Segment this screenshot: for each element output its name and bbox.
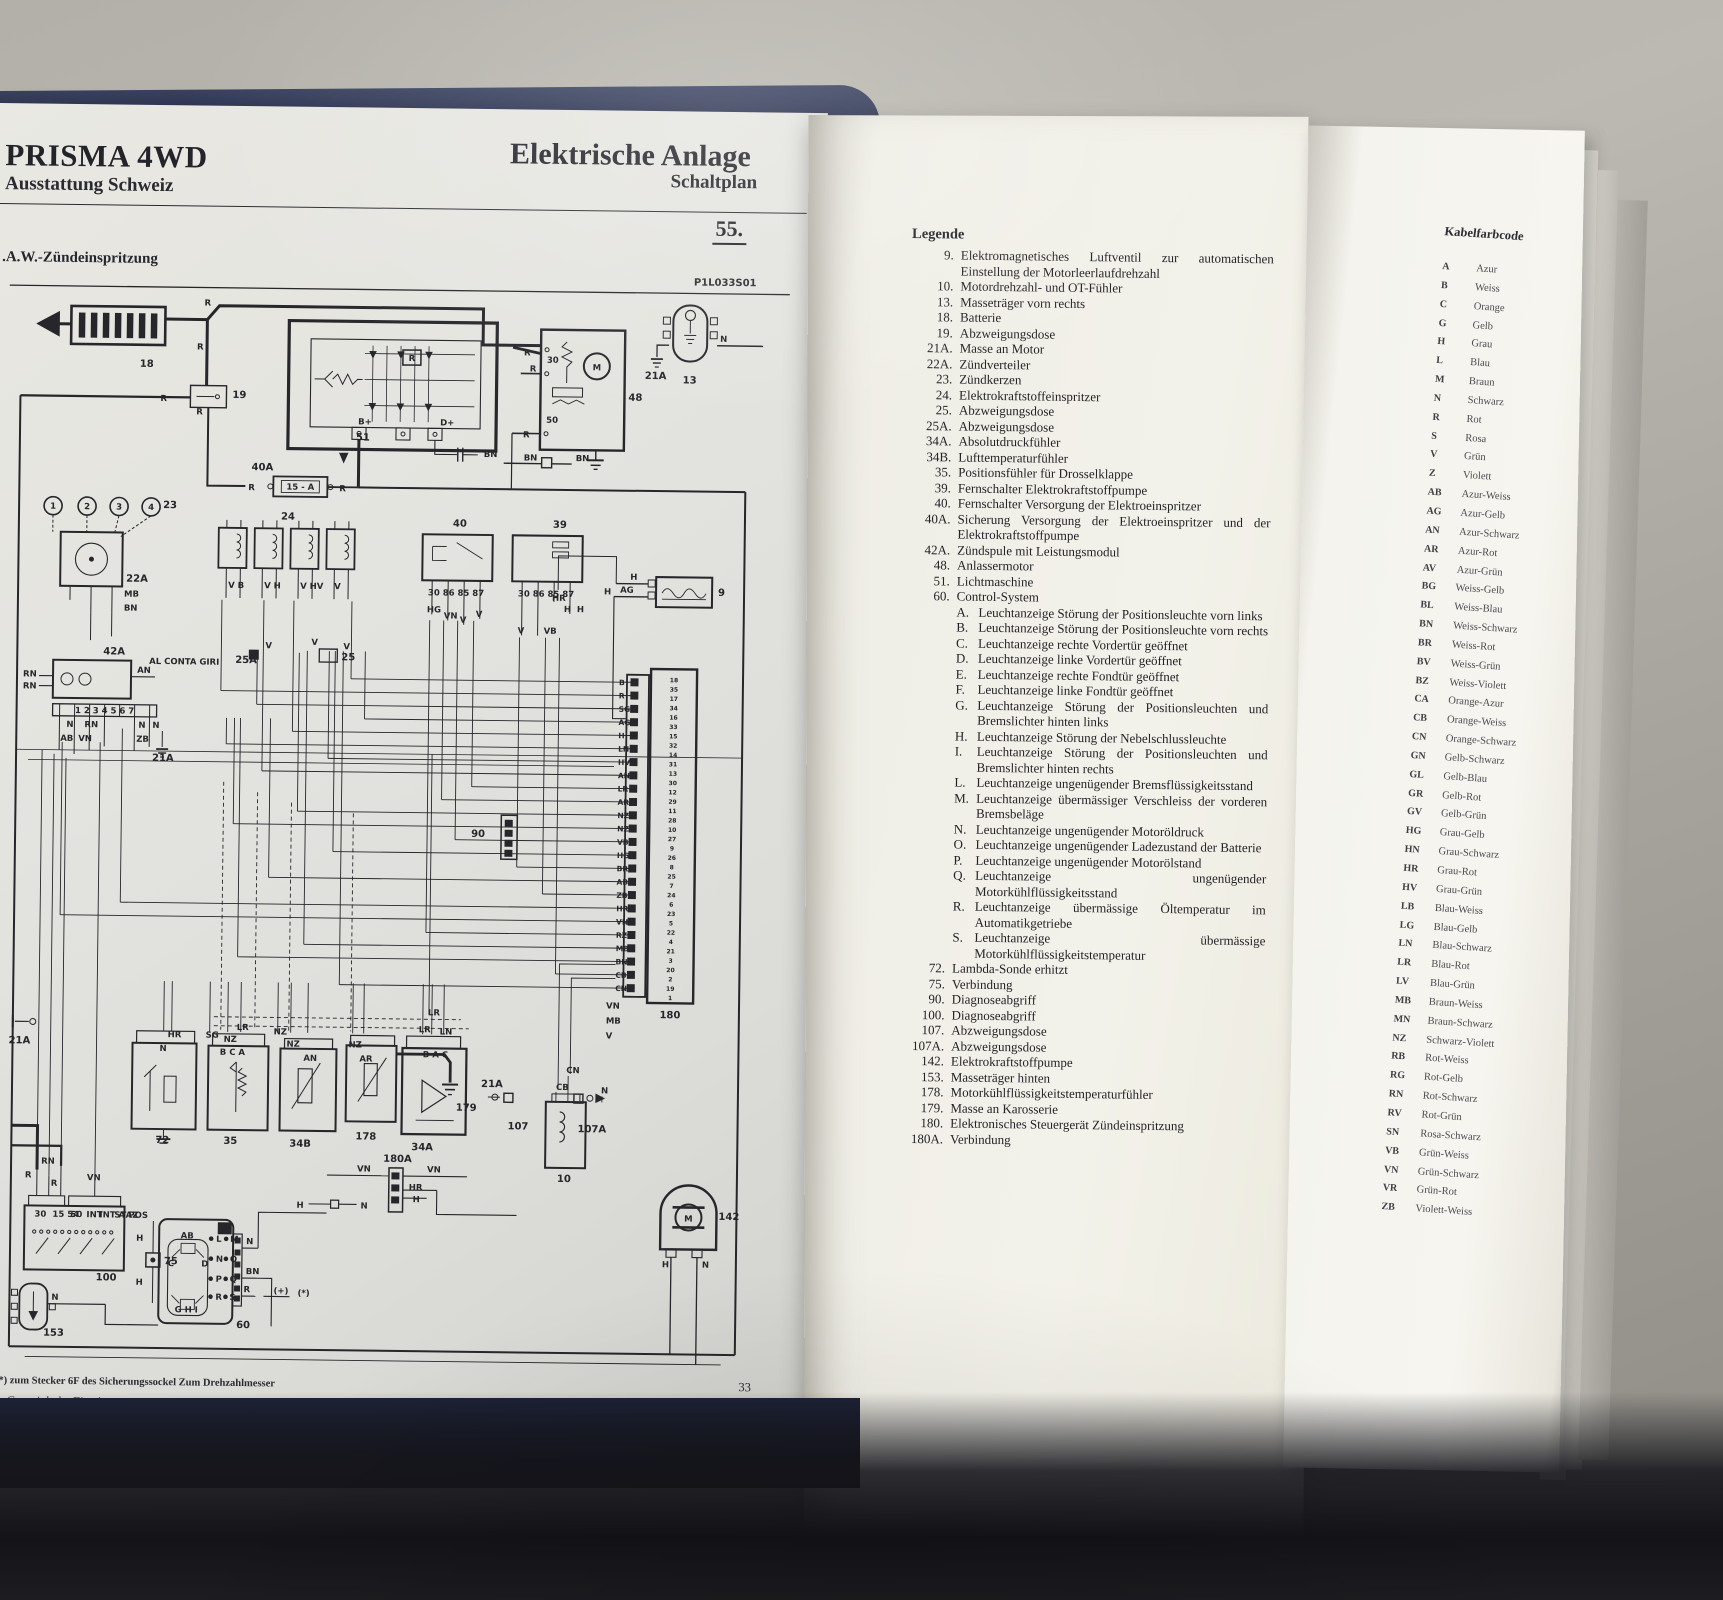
diagram-label: NZ [274, 1027, 287, 1037]
diagram-label: AN [618, 771, 630, 780]
diagram-label: 29 [668, 799, 676, 806]
diagram-label: H [577, 605, 584, 615]
kabelfarbcode-heading: Kabelfarbcode [1444, 224, 1596, 249]
diagram-label: NZ [286, 1040, 299, 1050]
diagram-label: VN [78, 734, 92, 744]
diagram-label: 10 [557, 1174, 571, 1185]
diagram-label: 35 [670, 687, 678, 694]
diagram-label: BN [576, 454, 590, 464]
diagram-label: V [265, 641, 272, 651]
section-title: Elektrische Anlage [475, 137, 785, 175]
diagram-label: 34B [289, 1139, 311, 1150]
diagram-label: R [25, 1170, 32, 1180]
diagram-label: 18 [670, 677, 678, 684]
diagram-label: 48 [628, 393, 642, 404]
diagram-label: 40A [252, 462, 274, 473]
diagram-label: 7 [669, 883, 673, 890]
left-page-schaltplan: PRISMA 4WD Ausstattung Schweiz Elektrisc… [0, 103, 828, 1421]
diagram-label: HG [617, 851, 630, 860]
legend-subitem: M.Leuchtanzeige übermässiger Verschleiss… [901, 789, 1267, 824]
diagram-label: POS [128, 1211, 148, 1221]
diagram-label: 3 [668, 958, 672, 965]
legend-item: 180A.Verbindung [897, 1130, 1263, 1150]
diagram-label: P [216, 1275, 222, 1285]
diagram-label: 17 [670, 696, 678, 703]
diagram-label: 2 [84, 502, 90, 512]
diagram-label: 24 [281, 511, 295, 522]
diagram-label: VN [427, 1165, 441, 1175]
diagram-label: 23 [667, 911, 675, 918]
diagram-label: BN [246, 1267, 260, 1277]
diagram-label: R [160, 394, 167, 404]
diagram-label: S [229, 1293, 235, 1303]
diagram-label: 9 [670, 846, 674, 853]
diagram-label: AL CONTA GIRI [149, 657, 219, 668]
diagram-label: 32 [669, 743, 677, 750]
diagram-label: 21A [8, 1035, 30, 1046]
diagram-label: R [619, 691, 625, 700]
diagram-label: HR [409, 1183, 423, 1193]
diagram-label: CB [556, 1083, 569, 1093]
diagram-label: RN [41, 1157, 55, 1167]
legend-subitem: G.Leuchtanzeige Störung der Positionsleu… [902, 696, 1268, 731]
diagram-label: RN [23, 669, 37, 679]
diagram-label: 23 [163, 500, 177, 511]
diagram-label: MB [606, 1016, 621, 1026]
diagram-label: NZ [617, 824, 629, 833]
diagram-label: B [619, 678, 625, 687]
diagram-label: 142 [718, 1212, 739, 1223]
diagram-label: V [334, 582, 341, 592]
diagram-label: O [230, 1255, 237, 1265]
diagram-label: R [530, 365, 537, 375]
diagram-label: 39 [553, 520, 567, 531]
diagram-label: 178 [355, 1131, 376, 1142]
diagram-label: H [413, 1195, 420, 1205]
diagram-label: HV [618, 758, 630, 767]
diagram-label: 2 [668, 976, 672, 983]
diagram-label: BN [484, 450, 498, 460]
diagram-label: B+ [358, 417, 372, 427]
diagram-label: LR [618, 785, 629, 794]
diagram-label: 8 [670, 864, 674, 871]
diagram-label: RZ [616, 931, 628, 940]
diagram-label: R [205, 299, 212, 309]
diagram-label: V [311, 638, 318, 648]
legend-subitem: I.Leuchtanzeige Störung der Positionsleu… [901, 743, 1267, 778]
diagram-label: 3 [116, 502, 122, 512]
diagram-label: BN [524, 453, 538, 463]
diagram-label: N [601, 1086, 608, 1096]
foldout-page-kabelfarbcode: Kabelfarbcode AAzurBWeissCOrangeGGelbHGr… [1283, 125, 1585, 1472]
diagram-label: 179 [456, 1103, 477, 1114]
diagram-label: VB [544, 627, 557, 637]
diagram-label: 1 [668, 995, 672, 1002]
diagram-label: CN [566, 1066, 579, 1076]
diagram-label: 30 86 85 87 [428, 588, 484, 599]
diagram-label: BR [617, 864, 629, 873]
legend-subitem: Q.Leuchtanzeige ungenügender Motorkühlfl… [900, 867, 1266, 902]
diagram-label: AN [303, 1054, 317, 1064]
diagram-label: N [246, 1237, 253, 1247]
diagram-label: 4 [148, 503, 154, 513]
diagram-label: MB [124, 590, 139, 600]
diagram-label: AR [617, 798, 629, 807]
diagram-label: V H [264, 581, 281, 591]
diagram-label: 13 [669, 771, 677, 778]
diagram-label: H [630, 573, 637, 583]
diagram-label: 60 [236, 1320, 250, 1331]
legend-block: Legende 9.Elektromagnetisches Luftventil… [897, 226, 1274, 1150]
diagram-label: 180A [383, 1154, 412, 1165]
diagram-label: 30 [547, 356, 559, 366]
diagram-subtitle: .A.W.-Zündeinspritzung [2, 249, 158, 268]
diagram-label: 15 [669, 733, 677, 740]
plan-number: 55. [712, 216, 746, 245]
diagram-label: 35 [223, 1136, 237, 1147]
diagram-label: 100 [96, 1272, 117, 1283]
diagram-label: 180 [659, 1010, 680, 1021]
diagram-label: MB [616, 944, 630, 953]
diagram-label: 50 [70, 1210, 82, 1220]
kabelfarbcode-block: Kabelfarbcode AAzurBWeissCOrangeGGelbHGr… [1381, 224, 1595, 1230]
diagram-label: NZ [617, 811, 629, 820]
right-page-legend: Legende 9.Elektromagnetisches Luftventil… [803, 115, 1308, 1565]
diagram-label: H [618, 731, 624, 740]
diagram-label: H [604, 587, 611, 597]
diagram-label: BN [616, 957, 628, 966]
diagram-label: C [168, 1259, 174, 1269]
diagram-label: LR [237, 1023, 250, 1033]
diagram-label: V [460, 616, 467, 626]
diagram-label: V [518, 626, 525, 636]
diagram-label: 24 [667, 892, 675, 899]
diagram-label: AG [620, 586, 634, 596]
diagram-label: B A C [423, 1050, 448, 1060]
diagram-label: R [197, 342, 204, 352]
diagram-label: 15 - A [286, 483, 314, 493]
legend-subitem: R.Leuchtanzeige übermässige Öltemperatur… [900, 898, 1266, 933]
diagram-label: 33 [669, 724, 677, 731]
section-header: Elektrische Anlage Schaltplan [475, 137, 786, 195]
diagram-label: AR [359, 1054, 373, 1064]
diagram-label: AB [181, 1231, 194, 1241]
diagram-label: N [216, 1255, 223, 1265]
legend-subitem: S.Leuchtanzeige übermässige Motorkühlflü… [899, 929, 1265, 964]
diagram-label: 1 2 3 4 5 6 7 [75, 706, 134, 717]
diagram-label: M [230, 1235, 239, 1245]
kabelfarbcode-rows: AAzurBWeissCOrangeGGelbHGrauLBlauMBraunN… [1381, 261, 1593, 1230]
diagram-label: 10 [668, 827, 676, 834]
diagram-label: N [152, 721, 159, 731]
diagram-label: 21A [481, 1079, 503, 1090]
legend-item: 9.Elektromagnetisches Luftventil zur aut… [908, 247, 1274, 282]
diagram-label: N [702, 1261, 709, 1271]
diagram-label: 4 [669, 939, 673, 946]
diagram-label: R [524, 348, 531, 358]
diagram-label: N [138, 721, 145, 731]
model-subtitle: Ausstattung Schweiz [5, 173, 174, 197]
diagram-label: L [216, 1235, 222, 1245]
diagram-label: H [136, 1278, 143, 1288]
diagram-label: 19 [232, 390, 246, 401]
diagram-label: HR [168, 1030, 182, 1040]
diagram-label: R [51, 1179, 58, 1189]
diagram-label: LR [428, 1008, 441, 1018]
diagram-label: V HV [300, 582, 324, 592]
diagram-label: AN [137, 666, 151, 676]
diagram-label: VN [444, 611, 458, 621]
diagram-label: 34A [411, 1142, 433, 1153]
diagram-label: 25A [235, 655, 257, 666]
diagram-label: R [523, 430, 530, 440]
diagram-label: H [564, 605, 571, 615]
diagram-label: (+) [273, 1286, 288, 1296]
photographed-manual-spread: PRISMA 4WD Ausstattung Schweiz Elektrisc… [0, 0, 1723, 1600]
diagram-label: 5 [669, 920, 673, 927]
diagram-label: R [409, 354, 416, 364]
diagram-label: SG [619, 705, 631, 714]
diagram-label: 14 [669, 752, 677, 759]
diagram-label: 16 [669, 715, 677, 722]
diagram-label: 42A [103, 646, 125, 657]
diagram-label: AG [618, 718, 630, 727]
diagram-label: N [720, 335, 727, 345]
diagram-label: 27 [668, 836, 676, 843]
diagram-label: N [66, 720, 73, 730]
diagram-label: AB [60, 734, 73, 744]
diagram-label: 31 [669, 761, 677, 768]
diagram-label: CN [615, 984, 627, 993]
diagram-label: M [593, 363, 602, 373]
diagram-label: 28 [668, 817, 676, 824]
diagram-label: ZB [136, 735, 149, 745]
diagram-label: 30 [34, 1210, 46, 1220]
diagram-label: 13 [683, 375, 697, 386]
diagram-label: LN [440, 1027, 453, 1037]
diagram-label: 30 86 85 87 [518, 589, 574, 600]
diagram-label: D [221, 1225, 228, 1235]
diagram-label: SG [206, 1031, 219, 1041]
diagram-label: 90 [471, 829, 485, 840]
diagram-label: M [684, 1214, 693, 1224]
diagram-label: RN [23, 681, 37, 691]
diagram-label: 1 [50, 502, 56, 512]
diagram-label: BN [124, 604, 138, 614]
wiring-diagram: 181951481321A40A2322A2425A25403942A21A99… [0, 279, 796, 1379]
diagram-label: 26 [668, 855, 676, 862]
diagram-label: (*) [297, 1289, 309, 1299]
diagram-label: NZ [348, 1040, 361, 1050]
diagram-label: 22 [667, 930, 675, 937]
diagram-label: NZ [224, 1035, 237, 1045]
diagram-label: LN [618, 745, 629, 754]
diagram-label: R [339, 484, 346, 494]
diagram-label: 72 [155, 1135, 169, 1146]
diagram-label: G H I [175, 1305, 198, 1315]
legend-items: 9.Elektromagnetisches Luftventil zur aut… [897, 247, 1274, 1150]
diagram-label: Q [230, 1275, 237, 1285]
diagram-label: D [201, 1260, 208, 1270]
diagram-label: 25 [341, 652, 355, 663]
legend-item: 40A.Sicherung Versorgung der Elektroeins… [904, 510, 1270, 545]
diagram-label: AB [616, 878, 628, 887]
diagram-label: 11 [668, 808, 676, 815]
diagram-label: VN [606, 1001, 620, 1011]
diagram-label: HG [427, 605, 441, 615]
diagram-label: 25 [667, 874, 675, 881]
diagram-label: 51 [356, 432, 370, 443]
diagram-label: 22A [126, 574, 148, 585]
wiring-diagram-svg: 181951481321A40A2322A2425A25403942A21A99… [0, 279, 796, 1379]
diagram-label: 107 [507, 1121, 528, 1132]
diagram-label: 21A [152, 753, 174, 764]
diagram-label: 30 [669, 780, 677, 787]
diagram-label: V [606, 1031, 613, 1041]
diagram-label: V [343, 642, 350, 652]
diagram-footnote: *) zum Stecker 6F des Sicherungssockel Z… [0, 1375, 275, 1389]
diagram-label: R [215, 1293, 222, 1303]
diagram-label: 50 [546, 416, 558, 426]
legend-heading: Legende [912, 226, 1274, 247]
diagram-label: VB [617, 838, 629, 847]
diagram-label: 18 [140, 359, 154, 370]
diagram-label: VN [87, 1173, 101, 1183]
diagram-label: LR [419, 1025, 432, 1035]
diagram-label: H [297, 1201, 304, 1211]
diagram-label: 34 [669, 705, 677, 712]
model-title: PRISMA 4WD [5, 137, 208, 175]
diagram-label: H [662, 1260, 669, 1270]
diagram-label: V B [228, 581, 244, 591]
table-shadow [0, 1392, 1723, 1600]
diagram-label: RN [84, 720, 98, 730]
diagram-label: 9 [718, 588, 725, 599]
diagram-label: 153 [43, 1328, 64, 1339]
diagram-label: N [361, 1202, 368, 1212]
diagram-label: R [248, 483, 255, 493]
diagram-label: H [136, 1234, 143, 1244]
diagram-label: N [159, 1044, 166, 1054]
diagram-label: D+ [440, 418, 454, 428]
diagram-label: CB [615, 971, 627, 980]
diagram-label: VN [616, 918, 628, 927]
diagram-label: V [476, 610, 483, 620]
diagram-label: 21A [645, 371, 667, 382]
diagram-label: B C A [220, 1048, 246, 1058]
diagram-label: N [51, 1293, 58, 1303]
diagram-label: 107A [577, 1124, 606, 1135]
diagram-label: 6 [669, 902, 673, 909]
diagram-label: 20 [666, 967, 674, 974]
diagram-label: 12 [668, 789, 676, 796]
diagram-label: VN [357, 1164, 371, 1174]
diagram-label: ZB [616, 891, 628, 900]
diagram-label: HR [616, 904, 628, 913]
header-rule [0, 203, 807, 214]
diagram-label: R [243, 1285, 250, 1295]
diagram-label: 19 [666, 986, 674, 993]
diagram-label: R [196, 407, 203, 417]
diagram-label: 21 [666, 948, 674, 955]
diagram-label: 40 [453, 519, 467, 530]
